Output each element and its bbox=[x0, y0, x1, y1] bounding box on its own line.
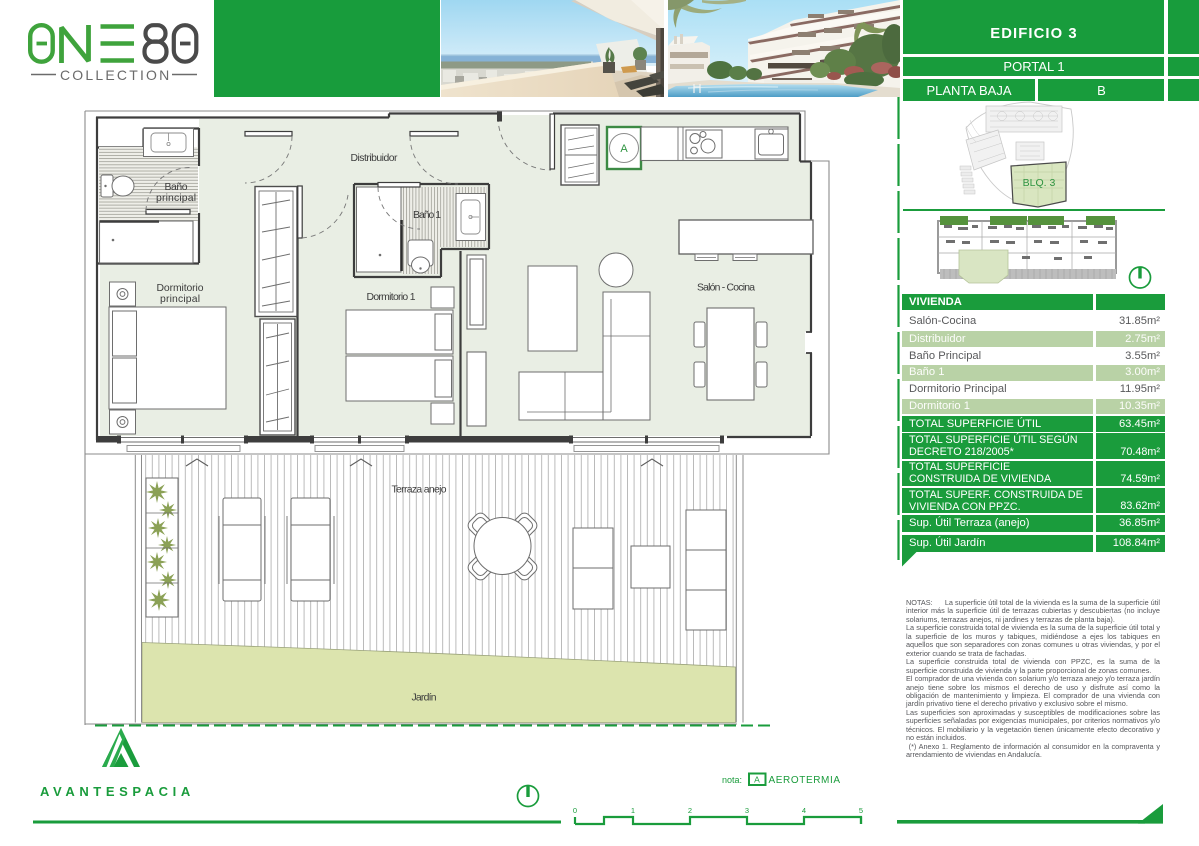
svg-text:Terraza anejo: Terraza anejo bbox=[392, 485, 447, 496]
svg-text:Dormitorio: Dormitorio bbox=[157, 283, 204, 294]
svg-text:2: 2 bbox=[688, 806, 692, 815]
svg-text:nota:: nota: bbox=[722, 775, 742, 785]
svg-text:0: 0 bbox=[573, 806, 577, 815]
svg-text:A: A bbox=[620, 143, 628, 155]
svg-text:4: 4 bbox=[802, 806, 806, 815]
svg-text:Dormitorio 1: Dormitorio 1 bbox=[367, 292, 416, 303]
svg-text:3: 3 bbox=[745, 806, 749, 815]
svg-text:Baño: Baño bbox=[165, 182, 188, 193]
svg-text:Distribuidor: Distribuidor bbox=[351, 153, 399, 164]
svg-text:Baño 1: Baño 1 bbox=[413, 210, 441, 221]
svg-text:principal: principal bbox=[156, 193, 196, 204]
svg-text:AEROTERMIA: AEROTERMIA bbox=[769, 775, 841, 786]
svg-text:BLQ. 3: BLQ. 3 bbox=[1023, 177, 1056, 189]
svg-text:principal: principal bbox=[160, 294, 200, 305]
svg-text:A: A bbox=[754, 775, 760, 785]
svg-text:Salón - Cocina: Salón - Cocina bbox=[697, 283, 755, 294]
svg-text:AVANTESPACIA: AVANTESPACIA bbox=[40, 784, 195, 799]
svg-text:1: 1 bbox=[631, 806, 635, 815]
svg-text:Jardín: Jardín bbox=[412, 693, 437, 704]
svg-text:5: 5 bbox=[859, 806, 863, 815]
